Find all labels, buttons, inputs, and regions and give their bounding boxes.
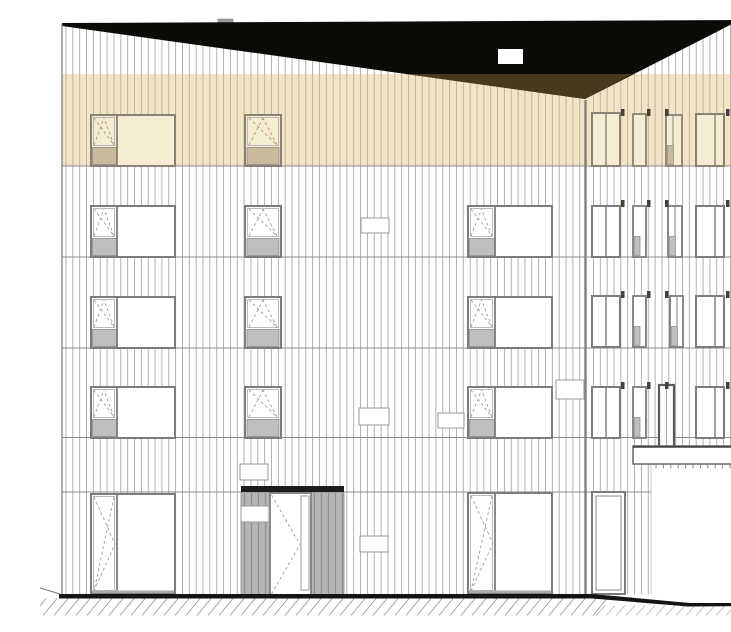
- window-f2-right-3: [670, 296, 683, 347]
- window-top-right-3: [666, 115, 682, 166]
- window-f1-right-2: [633, 387, 646, 438]
- window-f1-left-small: [245, 387, 281, 438]
- window: [696, 206, 724, 257]
- window-sub-panel: [668, 146, 674, 165]
- canopy-slab: [633, 446, 731, 464]
- window-f1-right-4: [696, 387, 724, 438]
- window-f1-terrace-door: [659, 385, 674, 449]
- window-f3-right-2: [633, 206, 646, 257]
- window-sill: [470, 420, 495, 437]
- entrance: [241, 486, 344, 596]
- window-top-right-2: [633, 114, 646, 166]
- window-f1-right-1: [592, 387, 620, 438]
- window-sub-panel: [635, 237, 641, 256]
- entrance-panel: [311, 492, 344, 596]
- building-elevation: [40, 16, 731, 616]
- window-sill: [93, 330, 117, 347]
- window-f3-left-small: [245, 206, 281, 257]
- window-tag: [726, 291, 730, 298]
- window-top-right-4: [696, 114, 724, 166]
- window: [633, 114, 646, 166]
- window: [696, 387, 724, 438]
- window-tag: [665, 109, 669, 116]
- window-sill: [470, 239, 495, 256]
- window-f3-mid-living: [468, 206, 552, 257]
- window-sill: [247, 148, 279, 165]
- window-top-right-1: [592, 113, 620, 166]
- window-f1-mid-living: [468, 387, 552, 438]
- vent-grille: [556, 380, 584, 399]
- window-tag: [665, 200, 669, 207]
- window-tag: [647, 109, 651, 116]
- window: [696, 296, 724, 347]
- window-f1-left-living: [91, 387, 175, 438]
- window-sill: [93, 239, 117, 256]
- ground-glass-door: [91, 494, 175, 594]
- window: [696, 114, 724, 166]
- window-tag: [665, 291, 669, 298]
- window-tag: [647, 382, 651, 389]
- window-sill: [93, 148, 117, 165]
- window-sub-panel: [672, 327, 678, 346]
- window-tag: [726, 382, 730, 389]
- window-top-left-living: [91, 115, 175, 166]
- window: [592, 492, 625, 594]
- window-f3-right-3: [668, 206, 682, 257]
- window-tag: [647, 291, 651, 298]
- window-tag: [621, 382, 625, 389]
- window-sill: [247, 239, 279, 256]
- vent-grille: [359, 408, 389, 425]
- door-lite: [301, 496, 309, 590]
- window-sub-panel: [635, 327, 641, 346]
- window-gf-mid-glass-door: [468, 493, 552, 594]
- sign-plate: [240, 464, 268, 480]
- entrance-header: [241, 486, 344, 492]
- ground-glass-door: [468, 493, 552, 594]
- window-tag: [726, 109, 730, 116]
- window-f2-right-1: [592, 296, 620, 347]
- window-f2-mid-living: [468, 297, 552, 348]
- door-threshold: [469, 591, 551, 594]
- elevation-svg: [40, 16, 731, 616]
- window-sub-panel: [635, 418, 641, 437]
- window-f2-right-4: [696, 296, 724, 347]
- window-tag: [665, 382, 669, 389]
- window-gf-left-glass-door: [91, 494, 175, 594]
- window-tag: [621, 291, 625, 298]
- window-sill: [247, 330, 279, 347]
- window-sill: [93, 420, 117, 437]
- window-f3-left-living: [91, 206, 175, 257]
- ground-line: [59, 594, 592, 599]
- window-tag: [726, 200, 730, 207]
- door-threshold: [92, 591, 174, 594]
- sign-plate: [241, 506, 269, 522]
- window-sub-panel: [670, 237, 676, 256]
- window-gf-right-window: [592, 492, 625, 594]
- window-sill: [470, 330, 495, 347]
- window-tag: [647, 200, 651, 207]
- window-top-left-small: [245, 115, 281, 166]
- vent-grille: [360, 536, 388, 552]
- window-sill: [247, 420, 279, 437]
- roof-vent: [498, 49, 523, 64]
- vent-grille: [361, 218, 389, 233]
- window-f3-right-1: [592, 206, 620, 257]
- window-f3-right-4: [696, 206, 724, 257]
- window-f2-right-2: [633, 296, 646, 347]
- vent-grille: [438, 413, 464, 428]
- window-f2-left-small: [245, 297, 281, 348]
- window-tag: [621, 200, 625, 207]
- window-f2-left-living: [91, 297, 175, 348]
- window-tag: [621, 109, 625, 116]
